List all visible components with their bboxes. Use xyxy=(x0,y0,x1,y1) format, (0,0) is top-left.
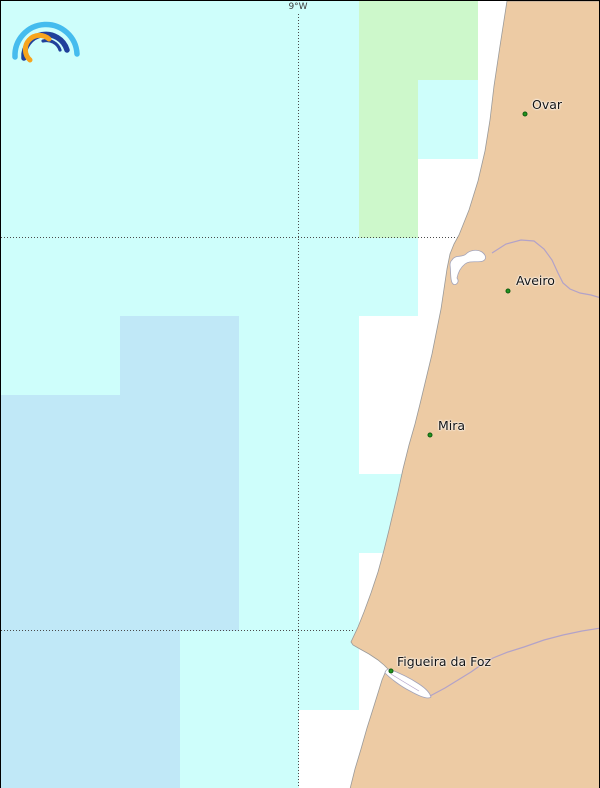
city-dot-figueira-da-foz xyxy=(389,669,394,674)
coastline-overlay xyxy=(1,1,600,788)
city-label-aveiro: Aveiro xyxy=(516,273,555,288)
city-dot-ovar xyxy=(523,112,528,117)
city-label-mira: Mira xyxy=(438,418,465,433)
city-dot-aveiro xyxy=(506,289,511,294)
rainbow-weather-logo-icon xyxy=(9,15,89,63)
logo-arc-inner xyxy=(43,40,60,50)
map-canvas: 9°W OvarAveiroMiraFigueira da Foz xyxy=(0,0,600,788)
city-label-figueira-da-foz: Figueira da Foz xyxy=(397,654,491,669)
city-label-ovar: Ovar xyxy=(532,97,562,112)
city-dot-mira xyxy=(428,433,433,438)
